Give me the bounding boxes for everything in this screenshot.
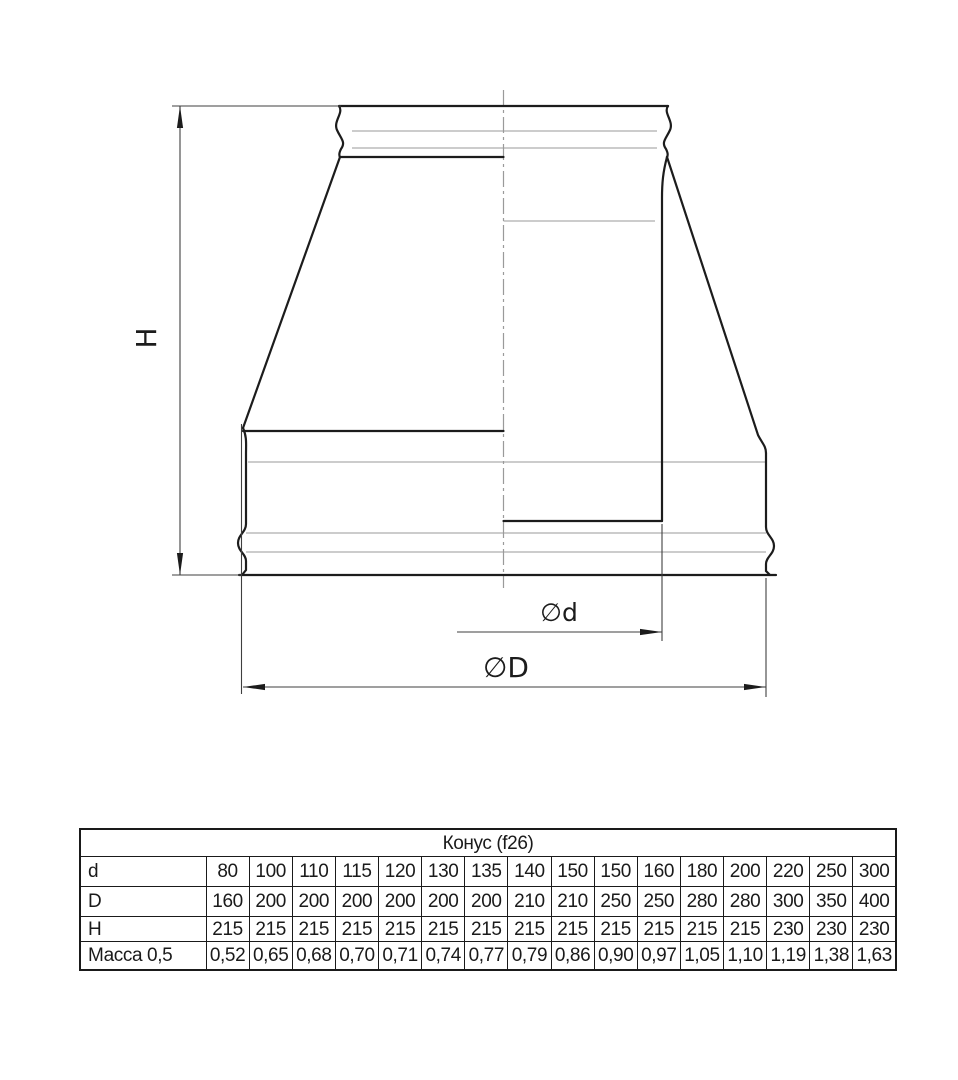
table-title: Конус (f26) bbox=[80, 829, 896, 857]
bead-lines bbox=[246, 131, 766, 552]
table-cell: 215 bbox=[594, 917, 637, 942]
inner-diameter-dimension: ∅d bbox=[457, 524, 662, 641]
table-cell: 0,79 bbox=[508, 942, 551, 971]
arrow-left bbox=[243, 684, 265, 690]
table-cell: 0,77 bbox=[465, 942, 508, 971]
table-cell: 300 bbox=[767, 887, 810, 917]
cone-outline bbox=[238, 106, 776, 575]
table-row: Масса 0,50,520,650,680,700,710,740,770,7… bbox=[80, 942, 896, 971]
table-title-row: Конус (f26) bbox=[80, 829, 896, 857]
table-cell: 215 bbox=[637, 917, 680, 942]
outer-diameter-label: ∅D bbox=[483, 651, 529, 684]
table-cell: 215 bbox=[551, 917, 594, 942]
table-cell: 80 bbox=[206, 857, 249, 887]
table-cell: 0,97 bbox=[637, 942, 680, 971]
table-cell: 150 bbox=[551, 857, 594, 887]
table-cell: 1,19 bbox=[767, 942, 810, 971]
table-cell: 0,90 bbox=[594, 942, 637, 971]
table-cell: 120 bbox=[379, 857, 422, 887]
table-cell: 135 bbox=[465, 857, 508, 887]
table-cell: 200 bbox=[335, 887, 378, 917]
h-dimension: H bbox=[130, 106, 341, 575]
inner-diameter-label: ∅d bbox=[540, 598, 578, 627]
table-cell: 215 bbox=[680, 917, 723, 942]
table-cell: 230 bbox=[767, 917, 810, 942]
table-cell: 215 bbox=[292, 917, 335, 942]
table-row: H215215215215215215215215215215215215215… bbox=[80, 917, 896, 942]
table-cell: 215 bbox=[422, 917, 465, 942]
table-cell: 0,86 bbox=[551, 942, 594, 971]
table-cell: 1,05 bbox=[680, 942, 723, 971]
table-cell: 200 bbox=[249, 887, 292, 917]
table-cell: 250 bbox=[637, 887, 680, 917]
table-cell: 0,52 bbox=[206, 942, 249, 971]
table-cell: 200 bbox=[379, 887, 422, 917]
table-cell: 210 bbox=[508, 887, 551, 917]
table-cell: 0,74 bbox=[422, 942, 465, 971]
table-cell: 110 bbox=[292, 857, 335, 887]
row-label: d bbox=[80, 857, 206, 887]
table-cell: 220 bbox=[767, 857, 810, 887]
table-cell: 100 bbox=[249, 857, 292, 887]
table-cell: 210 bbox=[551, 887, 594, 917]
table-cell: 280 bbox=[680, 887, 723, 917]
table-cell: 160 bbox=[637, 857, 680, 887]
table-cell: 350 bbox=[810, 887, 853, 917]
arrow-down bbox=[177, 553, 183, 575]
dimensions-table: Конус (f26) d801001101151201301351401501… bbox=[79, 828, 897, 971]
table-cell: 250 bbox=[594, 887, 637, 917]
dimensions-table-body: Конус (f26) d801001101151201301351401501… bbox=[80, 829, 896, 970]
table-cell: 115 bbox=[335, 857, 378, 887]
table-cell: 130 bbox=[422, 857, 465, 887]
table-cell: 0,68 bbox=[292, 942, 335, 971]
arrow-up bbox=[177, 106, 183, 128]
table-cell: 215 bbox=[249, 917, 292, 942]
row-label: Масса 0,5 bbox=[80, 942, 206, 971]
table-cell: 200 bbox=[465, 887, 508, 917]
h-dimension-label: H bbox=[130, 327, 163, 348]
table-cell: 230 bbox=[810, 917, 853, 942]
table-cell: 1,10 bbox=[724, 942, 767, 971]
table-cell: 215 bbox=[379, 917, 422, 942]
table-cell: 215 bbox=[206, 917, 249, 942]
table-cell: 250 bbox=[810, 857, 853, 887]
table-cell: 200 bbox=[422, 887, 465, 917]
table-cell: 1,63 bbox=[853, 942, 896, 971]
table-cell: 150 bbox=[594, 857, 637, 887]
table-cell: 0,65 bbox=[249, 942, 292, 971]
table-cell: 215 bbox=[508, 917, 551, 942]
table-cell: 300 bbox=[853, 857, 896, 887]
row-label: H bbox=[80, 917, 206, 942]
page: H ∅d ∅D bbox=[0, 0, 958, 1080]
table-row: D160200200200200200200210210250250280280… bbox=[80, 887, 896, 917]
table-cell: 280 bbox=[724, 887, 767, 917]
table-cell: 215 bbox=[335, 917, 378, 942]
table-cell: 400 bbox=[853, 887, 896, 917]
table-cell: 0,71 bbox=[379, 942, 422, 971]
table-cell: 0,70 bbox=[335, 942, 378, 971]
table-cell: 215 bbox=[724, 917, 767, 942]
table-cell: 180 bbox=[680, 857, 723, 887]
arrow-right bbox=[640, 629, 662, 635]
table-cell: 160 bbox=[206, 887, 249, 917]
table-cell: 215 bbox=[465, 917, 508, 942]
arrow-right bbox=[744, 684, 766, 690]
table-cell: 1,38 bbox=[810, 942, 853, 971]
table-cell: 140 bbox=[508, 857, 551, 887]
cone-technical-drawing: H ∅d ∅D bbox=[0, 0, 958, 800]
table-cell: 200 bbox=[724, 857, 767, 887]
table-cell: 230 bbox=[853, 917, 896, 942]
table-row: d801001101151201301351401501501601802002… bbox=[80, 857, 896, 887]
row-label: D bbox=[80, 887, 206, 917]
table-cell: 200 bbox=[292, 887, 335, 917]
